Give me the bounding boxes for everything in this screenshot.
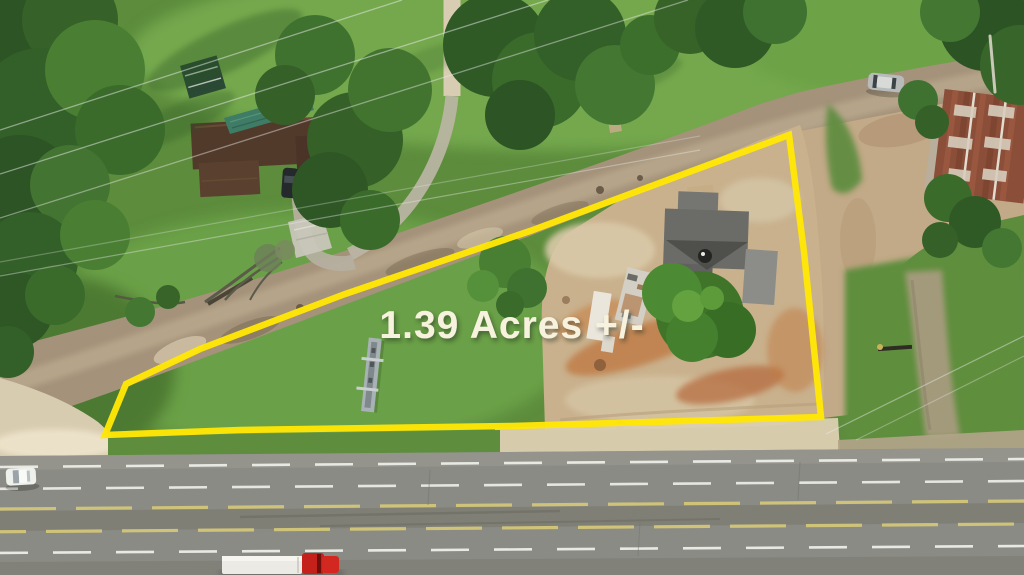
car-roof [876, 76, 892, 89]
tree [25, 265, 85, 325]
dirt-spot [594, 359, 606, 371]
cab-windshield [317, 554, 321, 573]
acreage-label: 1.39 Acres +/- [379, 304, 644, 347]
trailer-highlight [222, 556, 302, 561]
bush [915, 105, 949, 139]
roof-east-wing [742, 249, 778, 305]
dirt-spot [562, 296, 570, 304]
bush [922, 222, 958, 258]
aerial-photo: 1.39 Acres +/- [0, 0, 1024, 575]
white-car [5, 467, 40, 492]
car-windshield [13, 470, 20, 483]
sign-spot [370, 362, 375, 367]
chimney-cap [701, 252, 705, 256]
truck-hood [322, 556, 339, 573]
bush [125, 297, 155, 327]
tree [348, 48, 432, 132]
post-cap [877, 344, 883, 350]
car-rear-window [27, 471, 31, 482]
bush [982, 228, 1022, 268]
bush [156, 285, 180, 309]
semi-truck [220, 553, 344, 575]
tree-highlight [672, 290, 704, 322]
tree-highlight [700, 286, 724, 310]
fallen-foliage [275, 240, 295, 260]
car-roof [19, 470, 28, 483]
sign-spot [371, 348, 376, 353]
tree [255, 65, 315, 125]
bush [467, 270, 499, 302]
tree [485, 80, 555, 150]
sign-spot [368, 378, 373, 383]
sand-patch [545, 222, 655, 278]
chimney [698, 249, 712, 263]
highway [0, 448, 1024, 575]
road-pothole [637, 175, 643, 181]
road-pothole [596, 186, 604, 194]
aerial-photo-canvas: 1.39 Acres +/- [0, 0, 1024, 575]
